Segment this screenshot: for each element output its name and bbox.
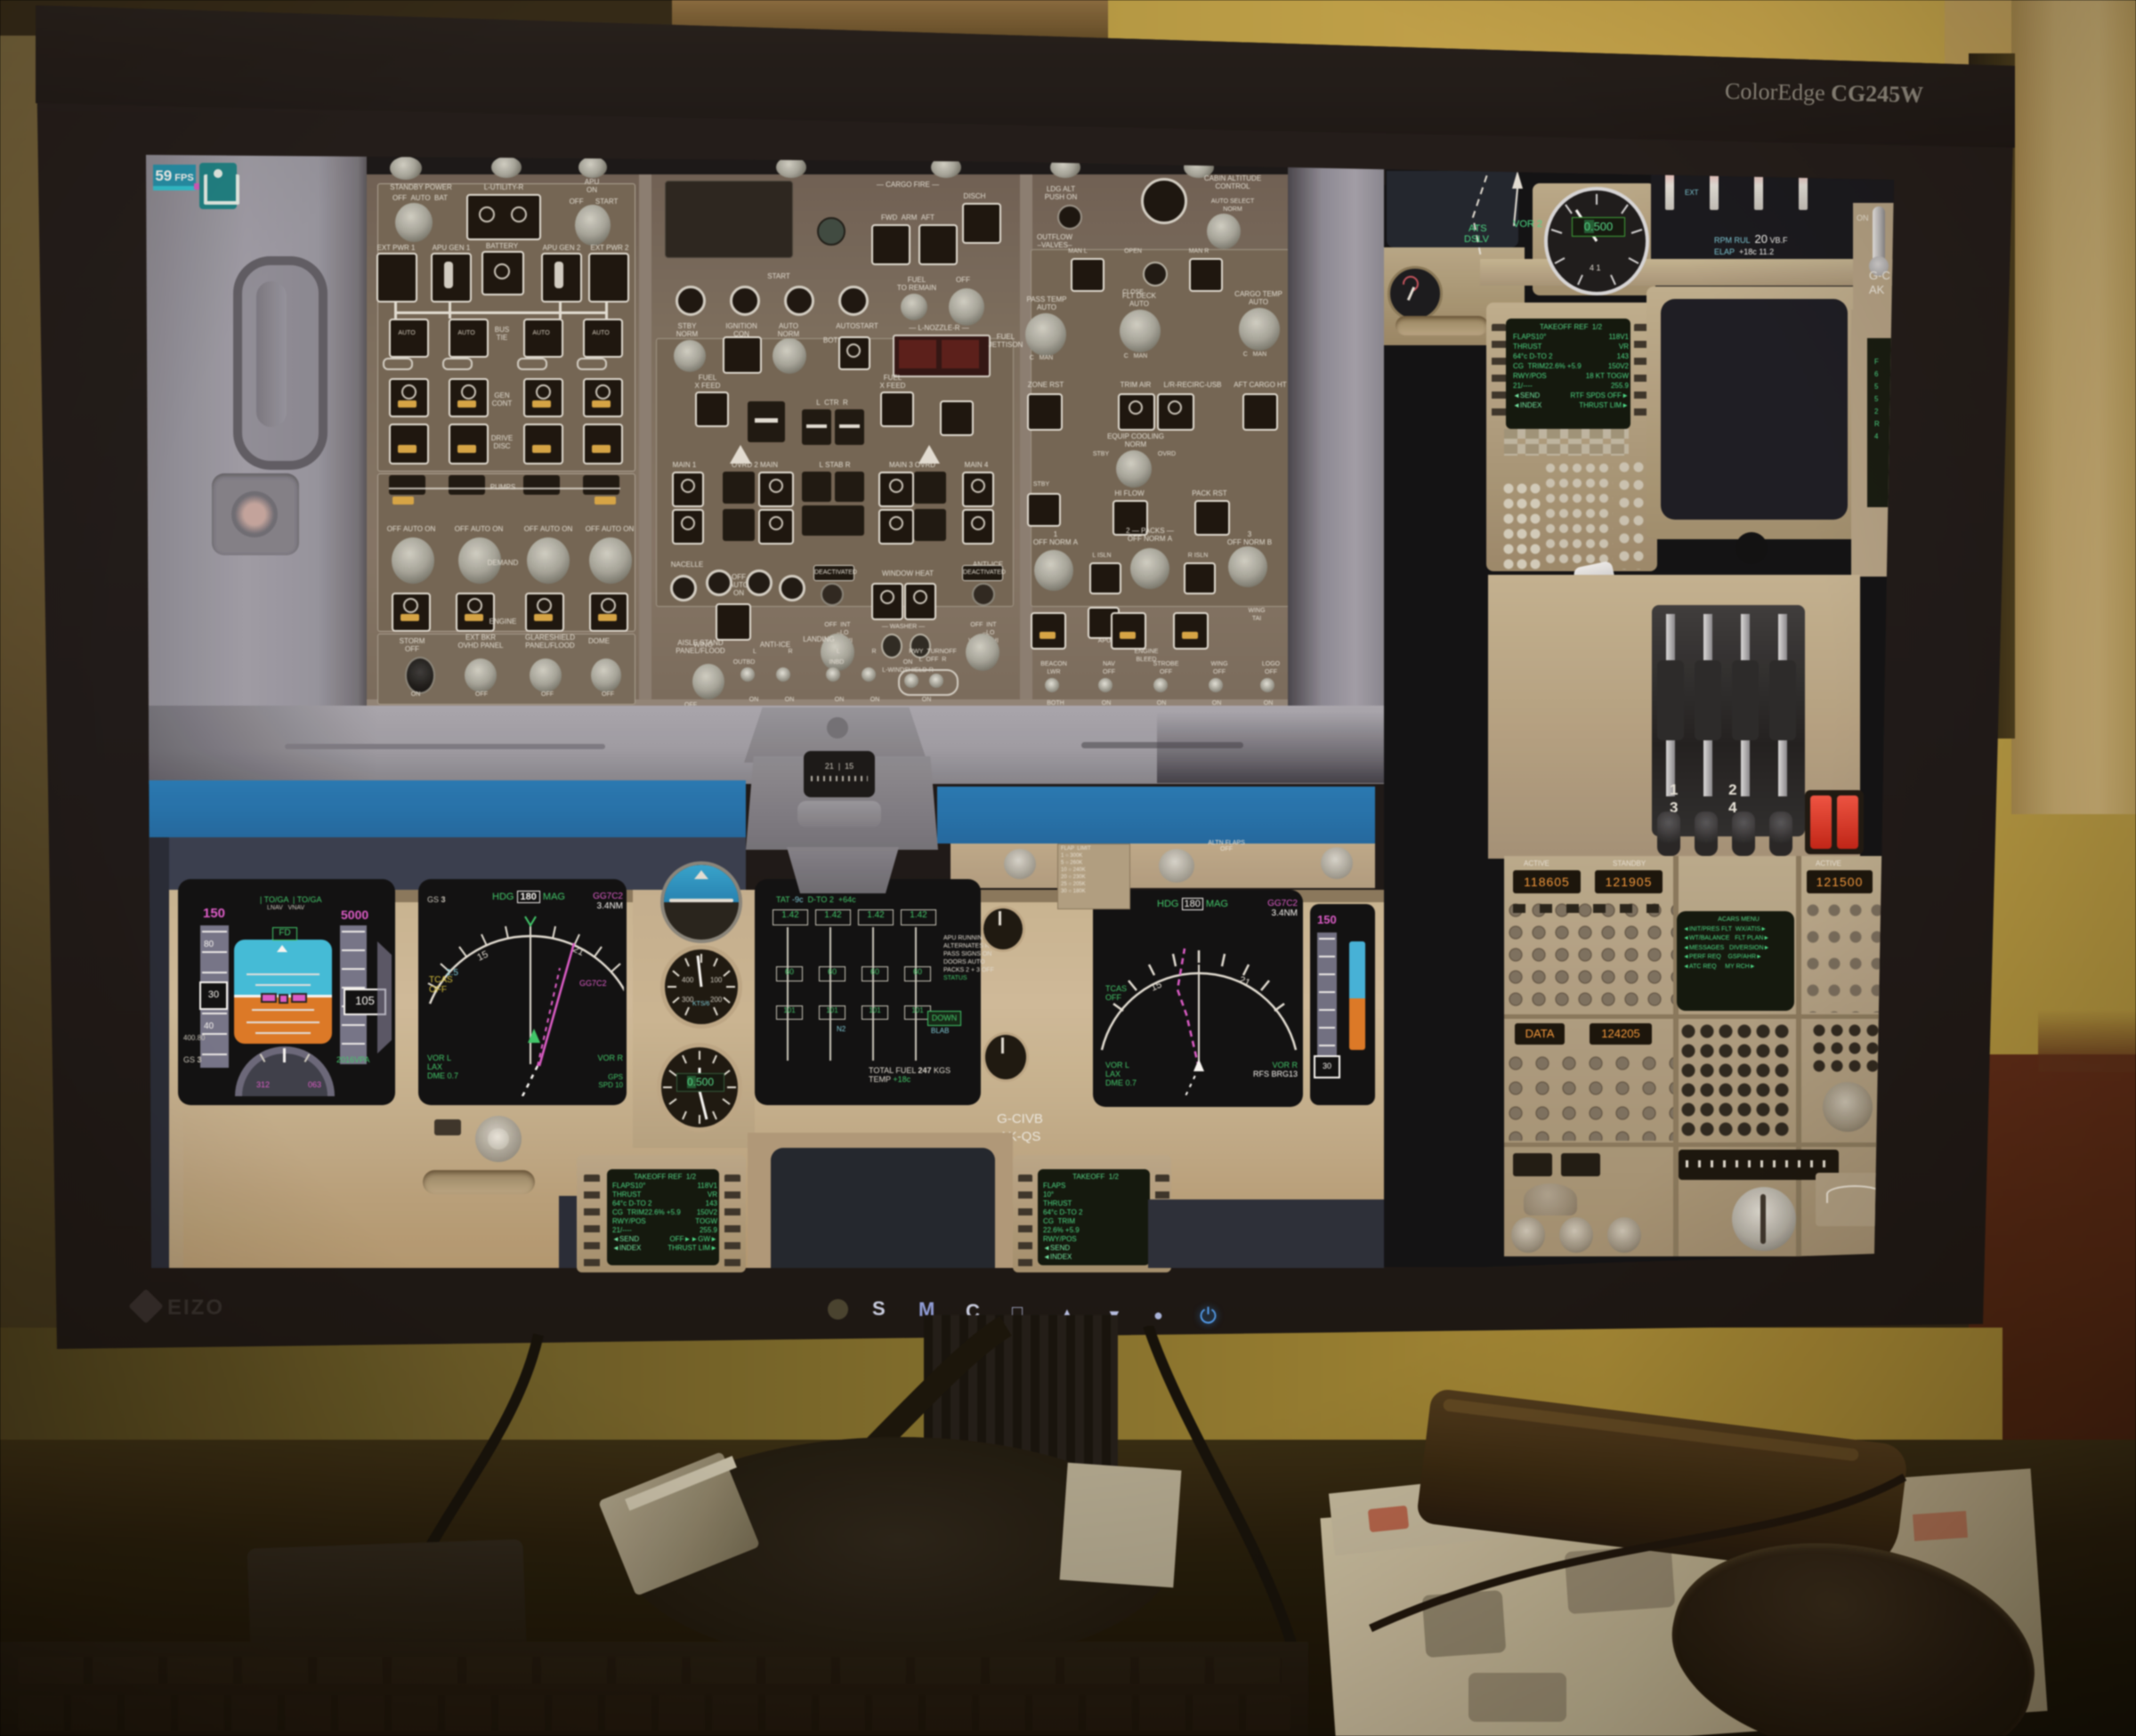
svg-text:ATS: ATS [1468, 223, 1487, 234]
svg-text:100: 100 [710, 976, 723, 984]
svg-text:15: 15 [475, 949, 489, 964]
svg-text:KTS/6: KTS/6 [692, 1001, 710, 1007]
svg-text:400: 400 [682, 976, 694, 984]
svg-text:200: 200 [710, 996, 723, 1004]
svg-text:DSLV: DSLV [1464, 234, 1490, 245]
svg-text:15: 15 [1149, 980, 1163, 994]
svg-text:GG7C2: GG7C2 [579, 979, 607, 988]
